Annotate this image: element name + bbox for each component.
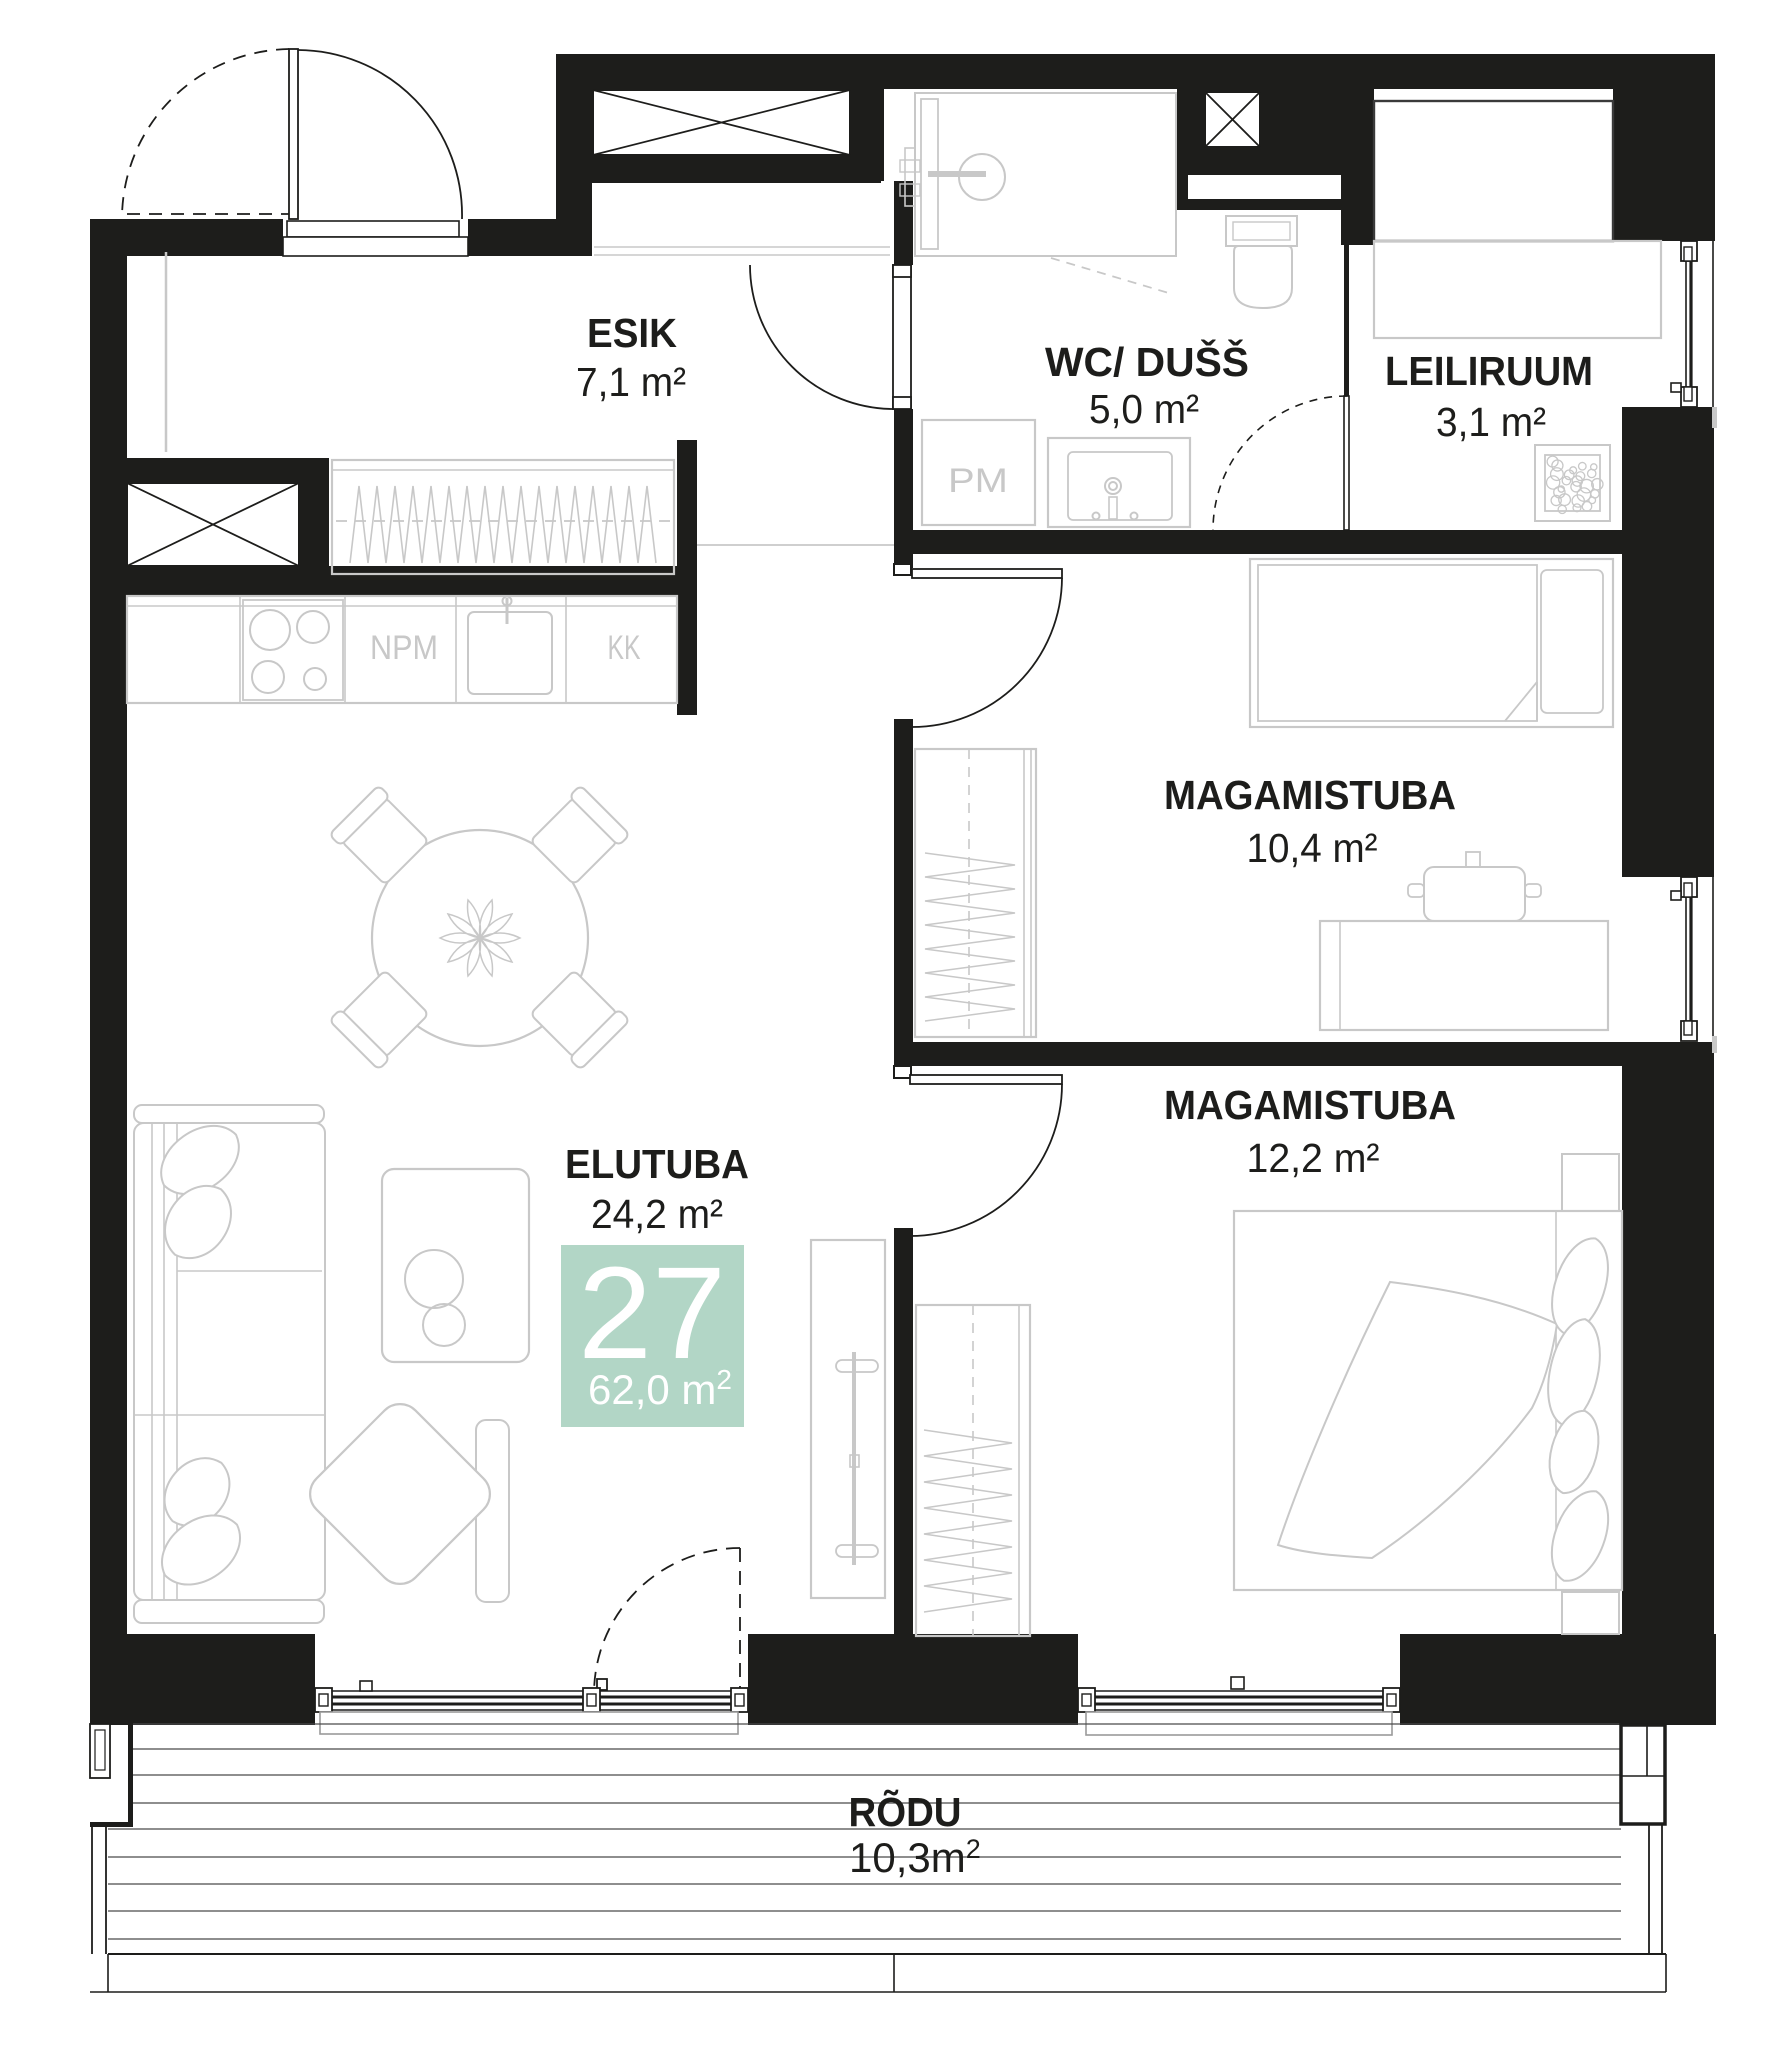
svg-text:12,2 m²: 12,2 m² xyxy=(1247,1135,1380,1181)
svg-text:KK: KK xyxy=(608,629,641,667)
svg-text:5,0 m²: 5,0 m² xyxy=(1089,386,1199,432)
svg-text:ESIK: ESIK xyxy=(587,310,677,356)
svg-text:3,1 m²: 3,1 m² xyxy=(1436,399,1546,445)
svg-text:ELUTUBA: ELUTUBA xyxy=(565,1141,749,1187)
svg-text:NPM: NPM xyxy=(370,629,438,667)
svg-text:RÕDU: RÕDU xyxy=(849,1789,962,1835)
svg-text:MAGAMISTUBA: MAGAMISTUBA xyxy=(1164,772,1456,818)
svg-text:WC/ DUŠŠ: WC/ DUŠŠ xyxy=(1045,339,1249,385)
svg-text:MAGAMISTUBA: MAGAMISTUBA xyxy=(1164,1082,1456,1128)
svg-text:27: 27 xyxy=(578,1239,726,1386)
svg-text:10,3m2: 10,3m2 xyxy=(849,1834,981,1881)
svg-text:24,2 m²: 24,2 m² xyxy=(591,1191,723,1237)
svg-text:10,4 m²: 10,4 m² xyxy=(1247,825,1378,871)
svg-text:PM: PM xyxy=(948,462,1008,500)
svg-text:7,1 m²: 7,1 m² xyxy=(576,359,686,405)
svg-text:LEILIRUUM: LEILIRUUM xyxy=(1385,348,1593,394)
svg-text:62,0 m2: 62,0 m2 xyxy=(588,1364,732,1413)
